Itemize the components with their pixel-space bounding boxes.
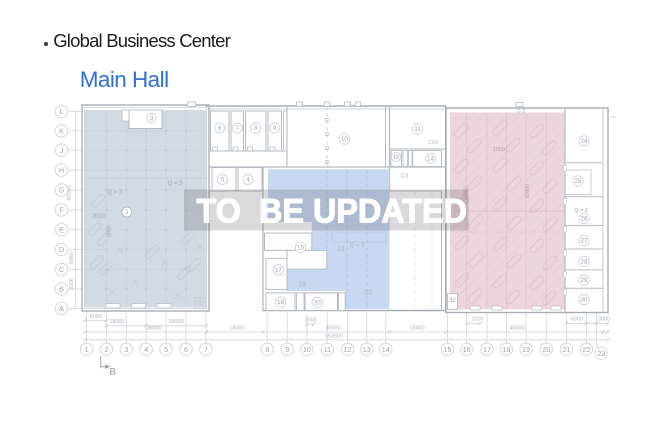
svg-text:6000: 6000 [90,314,102,320]
svg-text:Q = 3: Q = 3 [168,181,184,187]
svg-text:20: 20 [542,345,550,354]
svg-text:22: 22 [364,290,372,297]
svg-text:BE UPDATED: BE UPDATED [259,192,467,230]
svg-text:2: 2 [104,345,108,354]
svg-text:18000: 18000 [109,319,124,325]
svg-text:2: 2 [125,209,129,216]
svg-text:9000: 9000 [107,225,113,237]
svg-text:20: 20 [314,300,321,307]
svg-text:11: 11 [414,126,421,133]
svg-text:J: J [60,146,64,155]
svg-text:19: 19 [298,282,306,289]
svg-text:A: A [59,304,64,313]
svg-text:29: 29 [581,277,588,284]
svg-text:3: 3 [124,345,128,354]
svg-text:45000: 45000 [509,326,524,332]
svg-text:K: K [59,126,64,135]
svg-text:2-3: 2-3 [517,109,525,115]
svg-text:7: 7 [204,345,208,354]
svg-text:8: 8 [254,125,258,132]
svg-text:Q = 3: Q = 3 [350,243,366,249]
svg-text:9: 9 [285,345,289,354]
svg-text:14: 14 [382,345,390,354]
svg-text:15: 15 [297,245,304,252]
svg-text:4: 4 [144,345,148,354]
svg-text:C: C [59,265,64,274]
svg-text:18: 18 [502,345,510,354]
svg-text:18: 18 [277,299,284,306]
svg-text:15: 15 [444,345,452,354]
svg-text:36000: 36000 [146,326,161,332]
svg-text:3000: 3000 [598,317,610,323]
svg-text:E: E [59,225,64,234]
svg-text:18000: 18000 [229,326,244,332]
svg-text:5: 5 [221,177,225,184]
svg-text:14: 14 [427,156,434,163]
svg-text:F: F [59,206,64,215]
svg-text:D: D [59,245,64,254]
svg-text:21: 21 [562,345,570,354]
svg-text:28: 28 [581,259,588,266]
svg-text:B: B [59,285,64,294]
svg-text:13: 13 [363,345,371,354]
svg-text:B: B [110,367,116,378]
svg-text:6000: 6000 [571,317,583,323]
svg-text:18400: 18400 [409,326,424,332]
svg-text:Q = 3: Q = 3 [574,208,588,214]
svg-text:1: 1 [85,345,89,354]
svg-text:153600: 153600 [325,333,343,339]
svg-text:17: 17 [483,345,491,354]
svg-text:60000: 60000 [525,184,531,198]
svg-text:2690: 2690 [92,214,106,220]
svg-text:32: 32 [449,298,456,304]
svg-text:12: 12 [344,345,352,354]
svg-text:18000: 18000 [168,319,183,325]
svg-text:19: 19 [522,345,530,354]
svg-text:TO: TO [197,192,242,230]
svg-text:27: 27 [581,238,588,245]
svg-text:6000: 6000 [69,253,75,264]
svg-text:8: 8 [265,345,269,354]
svg-text:1000: 1000 [493,147,505,153]
svg-text:1300: 1300 [427,140,438,146]
svg-text:5: 5 [164,345,168,354]
svg-text:11: 11 [324,345,331,354]
svg-text:7: 7 [236,125,240,132]
svg-text:26: 26 [581,216,588,223]
svg-text:21: 21 [337,246,345,253]
svg-text:L: L [60,107,64,116]
svg-text:16: 16 [463,345,471,354]
svg-text:22: 22 [582,345,590,354]
svg-text:10: 10 [303,345,311,354]
svg-text:23: 23 [597,349,605,358]
svg-text:G: G [59,186,65,195]
svg-text:10: 10 [341,136,348,143]
svg-text:25: 25 [575,178,582,185]
svg-text:24: 24 [581,138,588,145]
svg-text:H: H [59,166,64,175]
svg-text:30: 30 [581,297,588,304]
svg-text:12: 12 [393,155,399,161]
svg-text:1: 1 [198,301,201,307]
svg-text:9: 9 [273,125,277,132]
svg-text:1000: 1000 [471,317,483,323]
svg-text:6: 6 [218,125,222,132]
svg-text:6000: 6000 [69,278,75,289]
svg-text:Q = 3: Q = 3 [107,190,123,196]
svg-text:13: 13 [401,173,409,180]
svg-text:4: 4 [246,177,250,184]
svg-text:36000: 36000 [325,326,340,332]
svg-text:6: 6 [184,345,188,354]
svg-text:17: 17 [275,267,282,274]
svg-text:2000: 2000 [305,318,317,324]
